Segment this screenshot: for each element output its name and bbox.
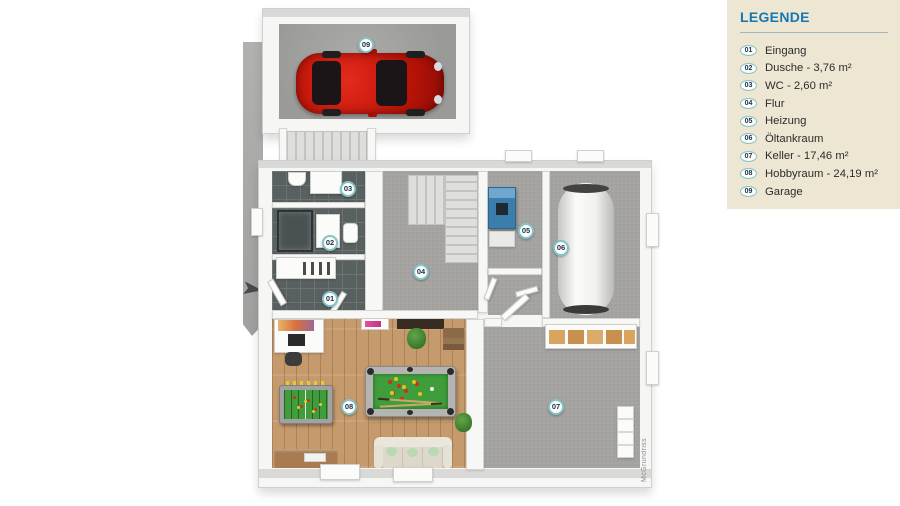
legend-item-oeltankraum: 06 Öltankraum	[740, 130, 888, 148]
room-marker-05: 05	[518, 223, 534, 239]
washbasin	[343, 223, 358, 243]
car-wheel	[406, 109, 425, 116]
oil-tank-top-ring	[563, 184, 609, 193]
watermark-text: McGrundriss	[641, 416, 648, 482]
pool-table	[365, 366, 456, 417]
legend-item-eingang: 01 Eingang	[740, 42, 888, 60]
plant	[407, 328, 426, 349]
wall-hobby-keller	[466, 319, 484, 470]
legend-item-label: WC - 2,60 m²	[765, 80, 832, 92]
legend-item-flur: 04 Flur	[740, 95, 888, 113]
pool-pocket	[367, 408, 374, 415]
car-headlight	[434, 95, 442, 104]
legend-item-label: Heizung	[765, 115, 806, 127]
legend-list: 01 Eingang 02 Dusche - 3,76 m² 03 WC - 2…	[740, 42, 888, 200]
wall-heating-bottom	[488, 268, 542, 275]
car-headlight	[434, 62, 442, 71]
basement-top-wall	[259, 161, 651, 168]
wall-vestibule-keller	[484, 318, 502, 327]
foosball-handles	[286, 381, 328, 385]
sofa-arm	[443, 445, 452, 468]
foosball-centerline	[305, 390, 306, 419]
sofa-arm	[374, 445, 383, 468]
room-marker-07: 07	[548, 399, 564, 415]
art-content	[365, 321, 381, 327]
wall-hall-left	[365, 171, 383, 313]
legend-item-label: Dusche - 3,76 m²	[765, 62, 852, 74]
sofa	[374, 437, 452, 468]
pool-pocket	[447, 408, 454, 415]
oil-tank-bottom-ring	[563, 305, 609, 314]
floorplan-page: McGrundriss 01 02 03 04 05 06 07 08 09 L…	[0, 0, 900, 506]
legend-item-wc: 03 WC - 2,60 m²	[740, 77, 888, 95]
pool-pocket	[407, 367, 413, 372]
pool-pocket	[367, 368, 374, 375]
legend-item-label: Keller - 17,46 m²	[765, 150, 849, 162]
desk-chair	[285, 352, 302, 366]
window	[505, 150, 532, 162]
pool-pocket	[407, 410, 413, 415]
storage-box	[549, 330, 565, 344]
wall-art-pink	[361, 318, 389, 330]
wc-sink-cabinet	[310, 171, 342, 194]
wc-toilet	[288, 172, 306, 186]
room-marker-06: 06	[553, 240, 569, 256]
window	[646, 351, 659, 385]
foosball-players-red	[293, 396, 296, 399]
pool-cue-ball	[430, 387, 434, 391]
lowboard-tray	[304, 453, 326, 462]
legend-badge: 05	[740, 116, 757, 127]
wood-sideboard	[443, 328, 464, 350]
legend-badge: 06	[740, 133, 757, 144]
legend-badge: 09	[740, 186, 757, 197]
legend-title: LEGENDE	[740, 9, 888, 25]
car-wheel	[322, 51, 341, 58]
legend-item-label: Eingang	[765, 45, 806, 57]
window	[393, 467, 433, 482]
room-marker-03: 03	[340, 181, 356, 197]
sofa-cushion	[386, 447, 397, 456]
legend-divider	[740, 32, 888, 33]
boiler-top	[489, 188, 515, 198]
sideboard-items	[303, 262, 333, 275]
pool-pocket	[447, 368, 454, 375]
window	[646, 213, 659, 247]
desk-poster	[278, 320, 314, 331]
entry-sideboard	[276, 257, 336, 279]
room-marker-02: 02	[322, 235, 338, 251]
storage-box	[606, 330, 622, 344]
legend-item-dusche: 02 Dusche - 3,76 m²	[740, 60, 888, 78]
sofa-cushion	[407, 448, 418, 457]
legend-item-label: Flur	[765, 98, 784, 110]
garage-top-wall	[263, 9, 469, 17]
legend-item-label: Hobbyraum - 24,19 m²	[765, 168, 878, 180]
room-marker-04: 04	[413, 264, 429, 280]
legend-item-label: Öltankraum	[765, 133, 823, 145]
keller-shelf-row	[545, 324, 637, 349]
window	[577, 150, 604, 162]
basement-bottom-wall	[259, 469, 651, 478]
boiler-unit	[488, 187, 516, 229]
boiler-pump	[489, 231, 515, 247]
legend-badge: 07	[740, 151, 757, 162]
plant	[455, 413, 472, 432]
car-mirror	[368, 112, 377, 117]
foosball-players-yellow	[297, 406, 300, 409]
storage-box	[587, 330, 603, 344]
storage-box	[568, 330, 584, 344]
pool-balls-yellow	[394, 377, 398, 381]
boiler-burner	[496, 203, 508, 215]
window	[320, 464, 360, 480]
foosball-table	[279, 385, 333, 424]
keller-empty-shelf	[617, 406, 634, 458]
legend-item-garage: 09 Garage	[740, 183, 888, 201]
legend-item-label: Garage	[765, 186, 803, 198]
room-marker-08: 08	[341, 399, 357, 415]
room-marker-01: 01	[322, 291, 338, 307]
car-wheel	[322, 109, 341, 116]
legend-badge: 01	[740, 45, 757, 56]
foosball-field	[284, 390, 328, 419]
car-windshield	[376, 60, 407, 106]
wall-heating-oiltank	[542, 171, 550, 318]
hall-stairs-upper	[408, 175, 445, 225]
window	[251, 208, 263, 236]
computer-monitor	[288, 334, 305, 346]
sofa-cushion	[428, 447, 439, 456]
car-wheel	[406, 51, 425, 58]
red-car	[296, 53, 444, 114]
legend-item-hobbyraum: 08 Hobbyraum - 24,19 m²	[740, 165, 888, 183]
car-rear-window	[312, 61, 341, 105]
legend-item-keller: 07 Keller - 17,46 m²	[740, 148, 888, 166]
legend-badge: 08	[740, 168, 757, 179]
room-marker-09: 09	[358, 37, 374, 53]
legend-badge: 04	[740, 98, 757, 109]
pool-balls-red	[388, 380, 392, 384]
hall-stairs-lower	[445, 175, 478, 263]
desk	[274, 319, 324, 353]
legend-badge: 02	[740, 63, 757, 74]
shower-enclosure	[277, 210, 313, 252]
legend-badge: 03	[740, 80, 757, 91]
storage-box	[624, 330, 635, 344]
dark-wall-shelf	[397, 319, 444, 329]
legend-panel: LEGENDE 01 Eingang 02 Dusche - 3,76 m² 0…	[727, 0, 900, 209]
legend-item-heizung: 05 Heizung	[740, 112, 888, 130]
